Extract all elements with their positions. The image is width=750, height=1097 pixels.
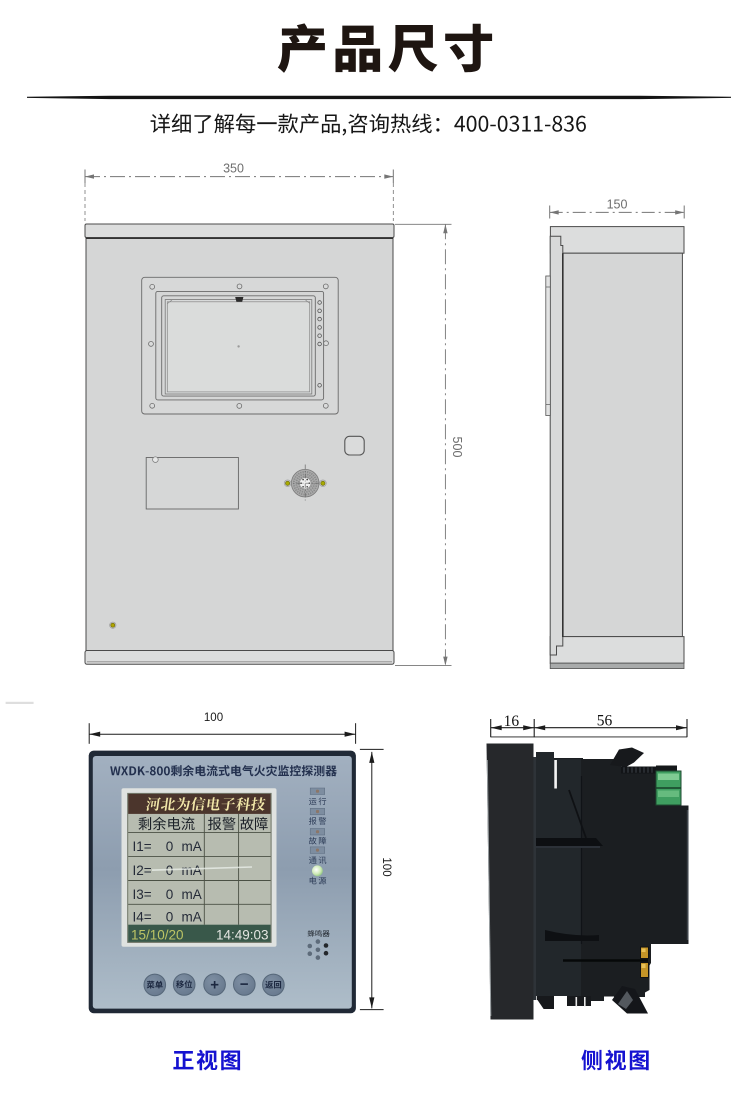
svg-text:+: + — [210, 977, 219, 994]
svg-text:100: 100 — [380, 857, 392, 876]
svg-text:15/10/20: 15/10/20 — [131, 928, 184, 943]
svg-text:−: − — [240, 976, 249, 993]
svg-text:0: 0 — [166, 887, 174, 902]
svg-text:150: 150 — [607, 198, 628, 212]
svg-text:350: 350 — [223, 162, 244, 176]
svg-text:56: 56 — [597, 713, 613, 730]
svg-text:500: 500 — [450, 437, 464, 458]
svg-text:16: 16 — [504, 713, 520, 730]
svg-text:I1=: I1= — [133, 839, 152, 854]
svg-text:I4=: I4= — [133, 910, 152, 925]
svg-text:14:49:03: 14:49:03 — [216, 928, 269, 943]
svg-text:mA: mA — [182, 887, 202, 902]
svg-text:mA: mA — [182, 910, 202, 925]
svg-text:0: 0 — [166, 839, 174, 854]
svg-text:I3=: I3= — [133, 887, 152, 902]
svg-text:mA: mA — [182, 839, 202, 854]
svg-text:100: 100 — [204, 712, 223, 724]
svg-text:mA: mA — [182, 863, 202, 878]
svg-text:0: 0 — [166, 910, 174, 925]
svg-text:I2=: I2= — [133, 863, 152, 878]
